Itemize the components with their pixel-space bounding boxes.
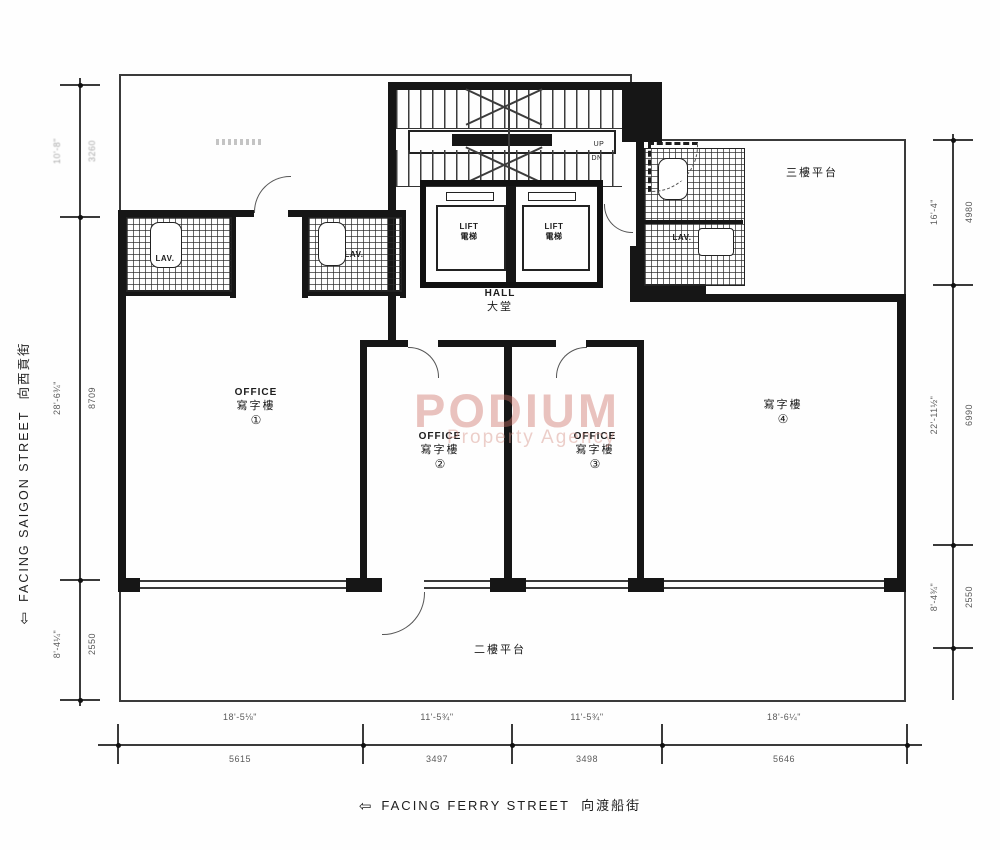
dimension-marker	[905, 743, 910, 748]
lift-door	[446, 192, 494, 201]
wall-segment	[644, 220, 743, 224]
street-saigon-zh: 向西貢街	[17, 342, 31, 400]
dimension-marker	[951, 283, 956, 288]
floor-plan: UP DN LIFT 電梯 LIFT 電梯 LAV. LAV. LAV. OFF…	[0, 0, 1000, 850]
dimension-label: 11'-5¾"	[527, 712, 647, 722]
dimension-marker	[361, 743, 366, 748]
window-line	[526, 580, 628, 582]
dimension-line	[79, 78, 81, 706]
dimension-marker	[78, 578, 83, 583]
wall-segment	[630, 246, 642, 302]
dimension-marker	[116, 743, 121, 748]
lift1-zh: 電梯	[436, 232, 502, 242]
wall-segment	[644, 284, 706, 298]
window-line	[424, 580, 490, 582]
lav-label: LAV.	[658, 233, 706, 243]
door-swing-arc	[604, 204, 633, 233]
door-swing-arc	[408, 347, 439, 378]
wall-segment	[388, 82, 634, 90]
stair-up-label: UP	[586, 140, 612, 149]
dimension-label: 3498	[527, 754, 647, 764]
dimension-label: 18'-5⅛"	[180, 712, 300, 722]
window-line	[664, 580, 884, 582]
lav-label: LAV.	[143, 254, 187, 264]
dimension-label: 8709	[87, 363, 99, 433]
dimension-marker	[951, 543, 956, 548]
window-line	[664, 587, 884, 589]
stair-landing-fill	[452, 134, 552, 146]
street-ferry-zh: 向渡船街	[581, 798, 641, 813]
wall-pier	[884, 578, 906, 592]
terrace-top-right-label: 三樓平台	[762, 166, 862, 180]
dimension-marker	[78, 215, 83, 220]
watermark-tagline: Property Agency	[447, 427, 616, 449]
dimension-label: 8'-4¼"	[52, 609, 64, 679]
dimension-label: 16'-4"	[929, 177, 941, 247]
dimension-label: 2550	[964, 562, 976, 632]
wall-segment	[360, 340, 408, 347]
dimension-label: 6990	[964, 380, 976, 450]
street-label-saigon: ⇦FACING SAIGON STREET 向西貢街	[13, 283, 31, 683]
wall-segment	[118, 210, 126, 592]
wall-pier	[628, 578, 664, 592]
dimension-label: 28'-6¾"	[52, 363, 64, 433]
lift1-label: LIFT 電梯	[436, 222, 502, 243]
office4-num: ④	[737, 412, 829, 428]
wall-pier	[118, 578, 140, 592]
window-line	[424, 587, 490, 589]
office1-label: OFFICE 寫字樓 ①	[210, 386, 302, 429]
lift-door	[528, 192, 576, 201]
dimension-label: 2550	[87, 609, 99, 679]
office4-label: 寫字樓 ④	[737, 398, 829, 428]
street-saigon-en: FACING SAIGON STREET	[17, 410, 31, 601]
dimension-marker	[510, 743, 515, 748]
dimension-label: 8'-4¾"	[929, 562, 941, 632]
lav-label: LAV.	[332, 250, 376, 260]
street-ferry-en: FACING FERRY STREET	[381, 798, 570, 813]
stair-down-label: DN	[584, 154, 610, 163]
lift1-en: LIFT	[436, 222, 502, 232]
office3-num: ③	[549, 457, 641, 473]
hall-zh: 大堂	[468, 300, 532, 314]
dimension-marker	[660, 743, 665, 748]
door-swing-arc	[254, 176, 291, 213]
wall-segment	[438, 340, 556, 347]
dimension-marker	[78, 698, 83, 703]
dimension-label: 10'-8"	[52, 116, 64, 186]
lift2-label: LIFT 電梯	[522, 222, 586, 243]
window-line	[140, 587, 346, 589]
dimension-marker	[951, 138, 956, 143]
wall-segment	[897, 294, 906, 586]
dimension-label: 3260	[87, 116, 99, 186]
door-swing-arc	[556, 347, 587, 378]
street-arrow-icon: ⇦	[16, 610, 33, 625]
street-label-ferry: ⇦FACING FERRY STREET 向渡船街	[0, 795, 1000, 815]
window-line	[526, 587, 628, 589]
dimension-label: 22'-11½"	[929, 380, 941, 450]
dimension-label: 4980	[964, 177, 976, 247]
office4-zh: 寫字樓	[737, 398, 829, 412]
window-line	[140, 580, 346, 582]
wall-pier	[346, 578, 382, 592]
hall-label: HALL 大堂	[468, 287, 532, 314]
dimension-marker	[78, 83, 83, 88]
outline-line	[648, 139, 906, 141]
hall-en: HALL	[468, 287, 532, 300]
office2-num: ②	[394, 457, 486, 473]
lift-divider-wall	[506, 186, 516, 282]
wall-segment	[360, 347, 367, 585]
outline-line	[120, 74, 632, 76]
door-swing-arc	[382, 592, 425, 635]
dimension-line	[952, 134, 954, 700]
terrace-bottom-label: 二樓平台	[450, 643, 550, 657]
faint-annotation	[216, 139, 262, 145]
dimension-label: 18'-6¼"	[724, 712, 844, 722]
lift2-zh: 電梯	[522, 232, 586, 242]
office1-en: OFFICE	[210, 386, 302, 399]
dimension-label: 3497	[377, 754, 497, 764]
lift2-en: LIFT	[522, 222, 586, 232]
wall-segment	[622, 82, 662, 142]
dimension-label: 5646	[724, 754, 844, 764]
street-arrow-icon: ⇦	[359, 798, 374, 815]
dimension-marker	[951, 646, 956, 651]
office1-zh: 寫字樓	[210, 399, 302, 413]
wall-segment	[586, 340, 644, 347]
dimension-label: 11'-5¾"	[377, 712, 497, 722]
office1-num: ①	[210, 413, 302, 429]
wall-pier	[490, 578, 526, 592]
outline-line	[119, 700, 906, 702]
dimension-label: 5615	[180, 754, 300, 764]
